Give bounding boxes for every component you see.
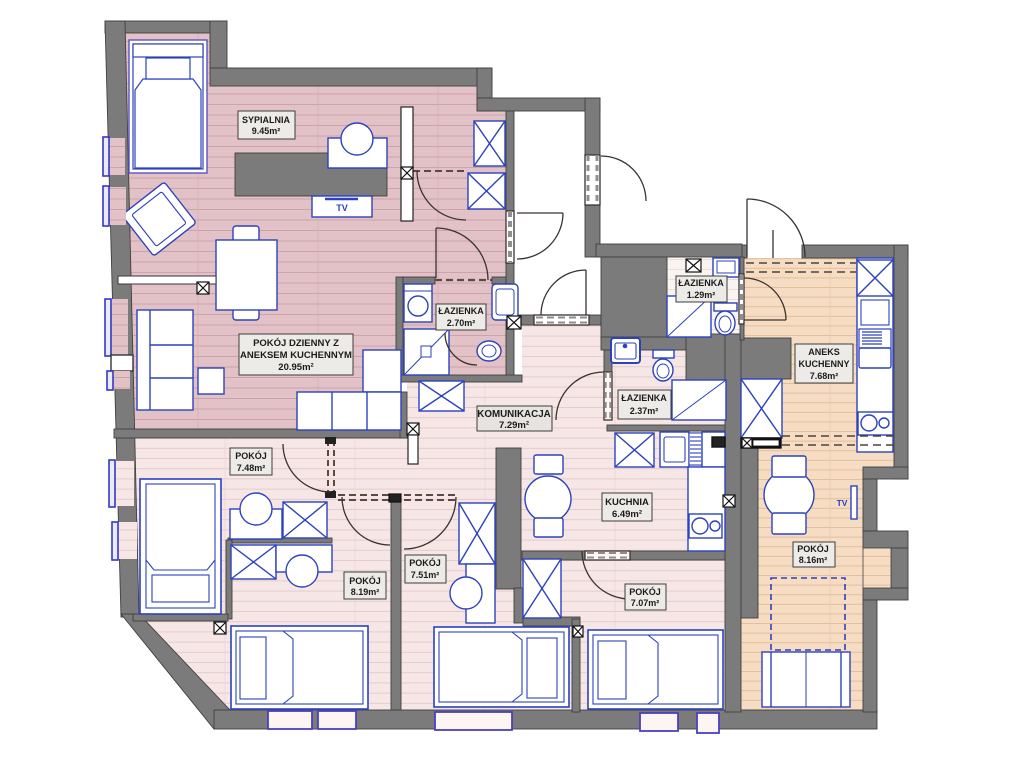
- svg-text:POKÓJ: POKÓJ: [349, 575, 381, 586]
- svg-text:2.70m²: 2.70m²: [447, 318, 476, 328]
- svg-text:POKÓJ: POKÓJ: [629, 586, 661, 597]
- svg-text:7.68m²: 7.68m²: [810, 371, 839, 381]
- svg-text:KOMUNIKACJA: KOMUNIKACJA: [477, 409, 550, 420]
- svg-text:7.51m²: 7.51m²: [411, 570, 440, 580]
- svg-text:20.95m²: 20.95m²: [278, 362, 313, 373]
- svg-text:ŁAZIENKA: ŁAZIENKA: [621, 393, 667, 403]
- svg-text:POKÓJ DZIENNY Z: POKÓJ DZIENNY Z: [253, 337, 339, 349]
- svg-text:KUCHNIA: KUCHNIA: [605, 497, 649, 508]
- svg-text:7.07m²: 7.07m²: [631, 598, 660, 608]
- svg-text:7.48m²: 7.48m²: [237, 463, 266, 473]
- svg-text:ANEKS: ANEKS: [808, 347, 840, 357]
- svg-text:ANEKSEM KUCHENNYM: ANEKSEM KUCHENNYM: [240, 350, 352, 361]
- svg-text:8.19m²: 8.19m²: [351, 587, 380, 597]
- svg-text:POKÓJ: POKÓJ: [409, 557, 441, 568]
- svg-text:POKÓJ: POKÓJ: [797, 543, 829, 554]
- svg-text:POKÓJ: POKÓJ: [235, 450, 267, 461]
- svg-text:8.16m²: 8.16m²: [799, 555, 828, 565]
- svg-text:7.29m²: 7.29m²: [499, 420, 529, 431]
- svg-text:9.45m²: 9.45m²: [252, 126, 281, 136]
- svg-text:SYPIALNIA: SYPIALNIA: [242, 115, 291, 125]
- svg-text:1.29m²: 1.29m²: [687, 290, 716, 300]
- svg-text:ŁAZIENKA: ŁAZIENKA: [438, 306, 484, 316]
- svg-text:TV: TV: [837, 498, 848, 508]
- svg-text:KUCHENNY: KUCHENNY: [798, 359, 849, 369]
- svg-text:2.37m²: 2.37m²: [630, 406, 659, 416]
- svg-text:TV: TV: [336, 203, 348, 213]
- svg-text:6.49m²: 6.49m²: [612, 509, 642, 520]
- svg-text:ŁAZIENKA: ŁAZIENKA: [678, 278, 724, 288]
